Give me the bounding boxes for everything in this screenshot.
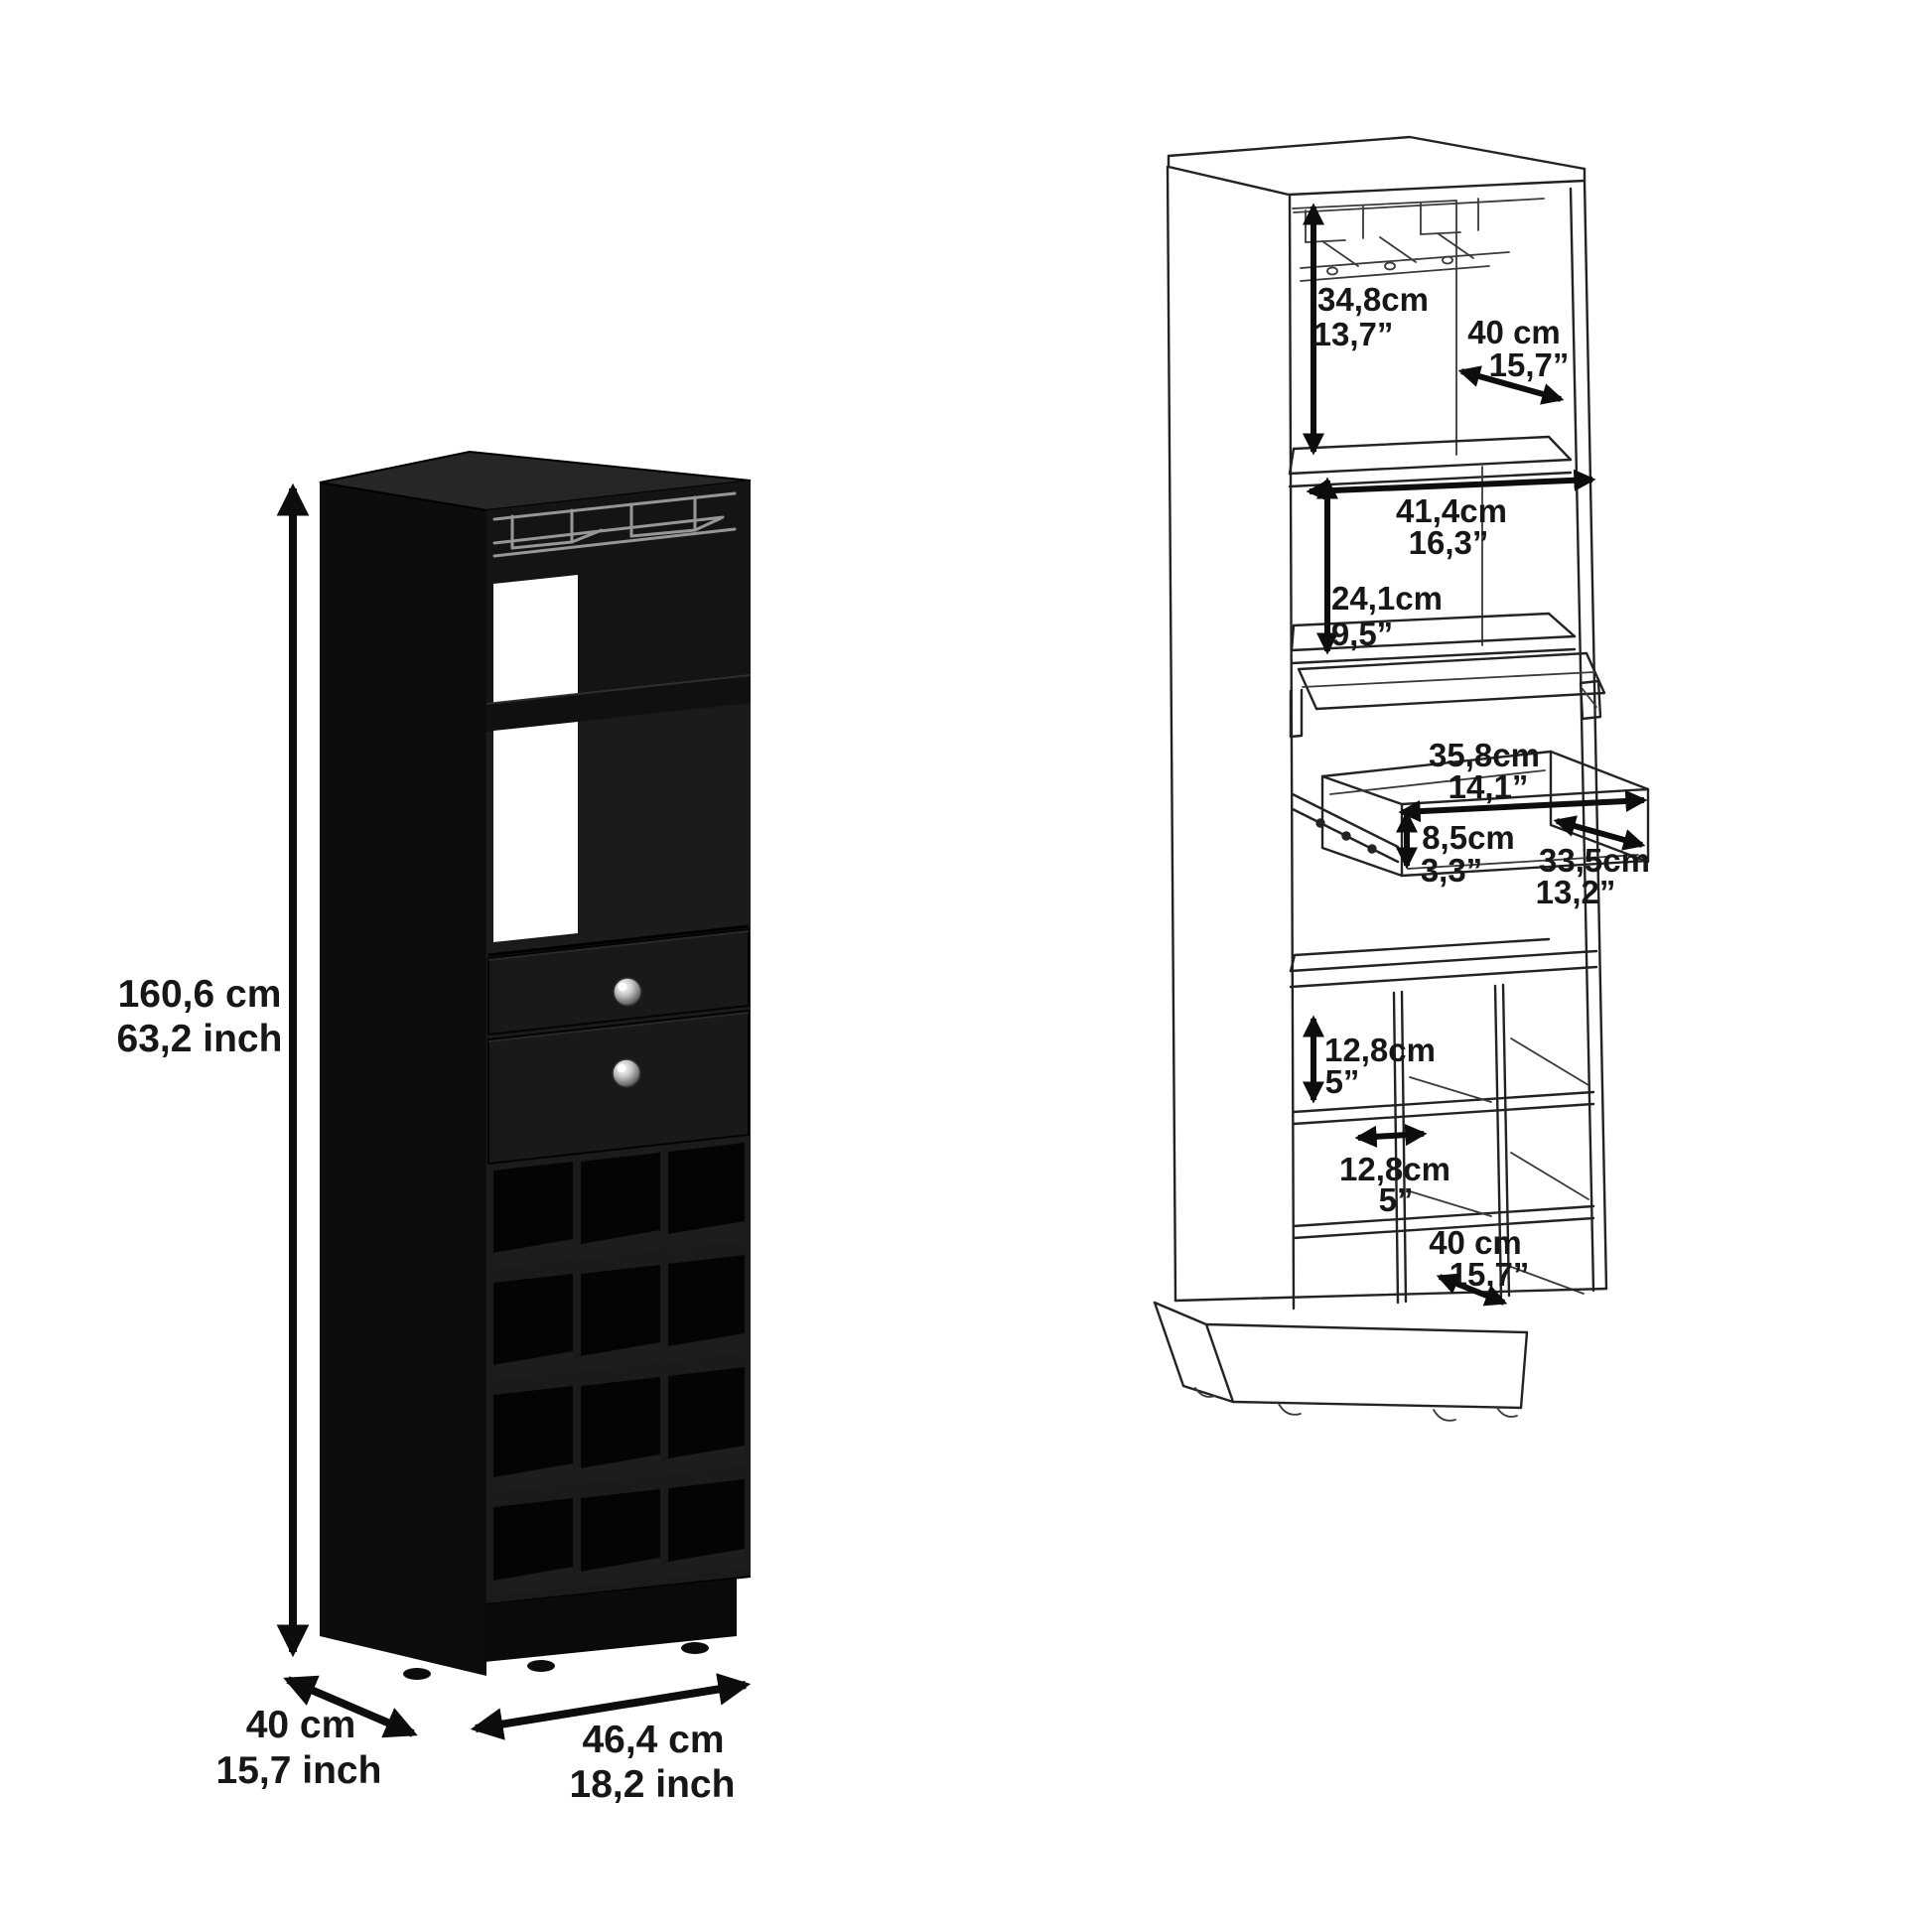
shelf-width-arrow [1310,480,1592,491]
cabinet-side-panel [320,483,486,1676]
render-view: 160,6 cm 63,2 inch 40 cm 15,7 inch 46,4 … [117,452,751,1806]
product-dimension-sheet: 160,6 cm 63,2 inch 40 cm 15,7 inch 46,4 … [0,0,1932,1932]
dimension-view: 34,8cm 13,7” 40 cm 15,7” 41,4cm 16,3” 24… [1155,137,1650,1421]
drawer-width-label-inch: 14,1” [1449,768,1529,805]
drawer-height-label-inch: 3,3” [1421,852,1482,889]
shelf-clearance-label-inch: 9,5” [1331,616,1393,652]
cubby-height-label-inch: 5” [1325,1063,1360,1100]
open-shelf-cutout-bottom [493,722,578,942]
drawer-depth-label-inch: 13,2” [1536,874,1616,910]
cabinet-render [320,452,751,1680]
width-label-cm: 46,4 cm [582,1719,724,1761]
open-shelf-cutout-top [493,575,578,704]
stemware-rack-outline [1294,199,1544,281]
height-label-cm: 160,6 cm [118,973,282,1016]
drawer-knob-bottom [613,1059,640,1087]
depth-label-inch: 15,7 inch [216,1749,382,1792]
internal-dimensions: 34,8cm 13,7” 40 cm 15,7” 41,4cm 16,3” 24… [1310,207,1650,1303]
rack-clearance-label-cm: 34,8cm [1317,281,1429,318]
shelf-clearance-label-cm: 24,1cm [1331,580,1443,617]
top-depth-label-inch: 15,7” [1489,346,1570,383]
top-depth-label-cm: 40 cm [1467,314,1561,350]
cubby-width-label-inch: 5” [1379,1181,1414,1218]
rack-clearance-label-inch: 13,7” [1313,316,1394,352]
drawer-knob-top [614,978,641,1006]
cubby-width-arrow [1358,1134,1424,1138]
height-label-inch: 63,2 inch [117,1018,283,1060]
width-label-inch: 18,2 inch [570,1763,736,1806]
bar-cabinet-dimension-diagram: 160,6 cm 63,2 inch 40 cm 15,7 inch 46,4 … [0,0,1932,1932]
depth-label-cm: 40 cm [246,1704,356,1746]
drawer-height-label-cm: 8,5cm [1422,819,1515,856]
shelf-width-label-inch: 16,3” [1409,524,1489,561]
